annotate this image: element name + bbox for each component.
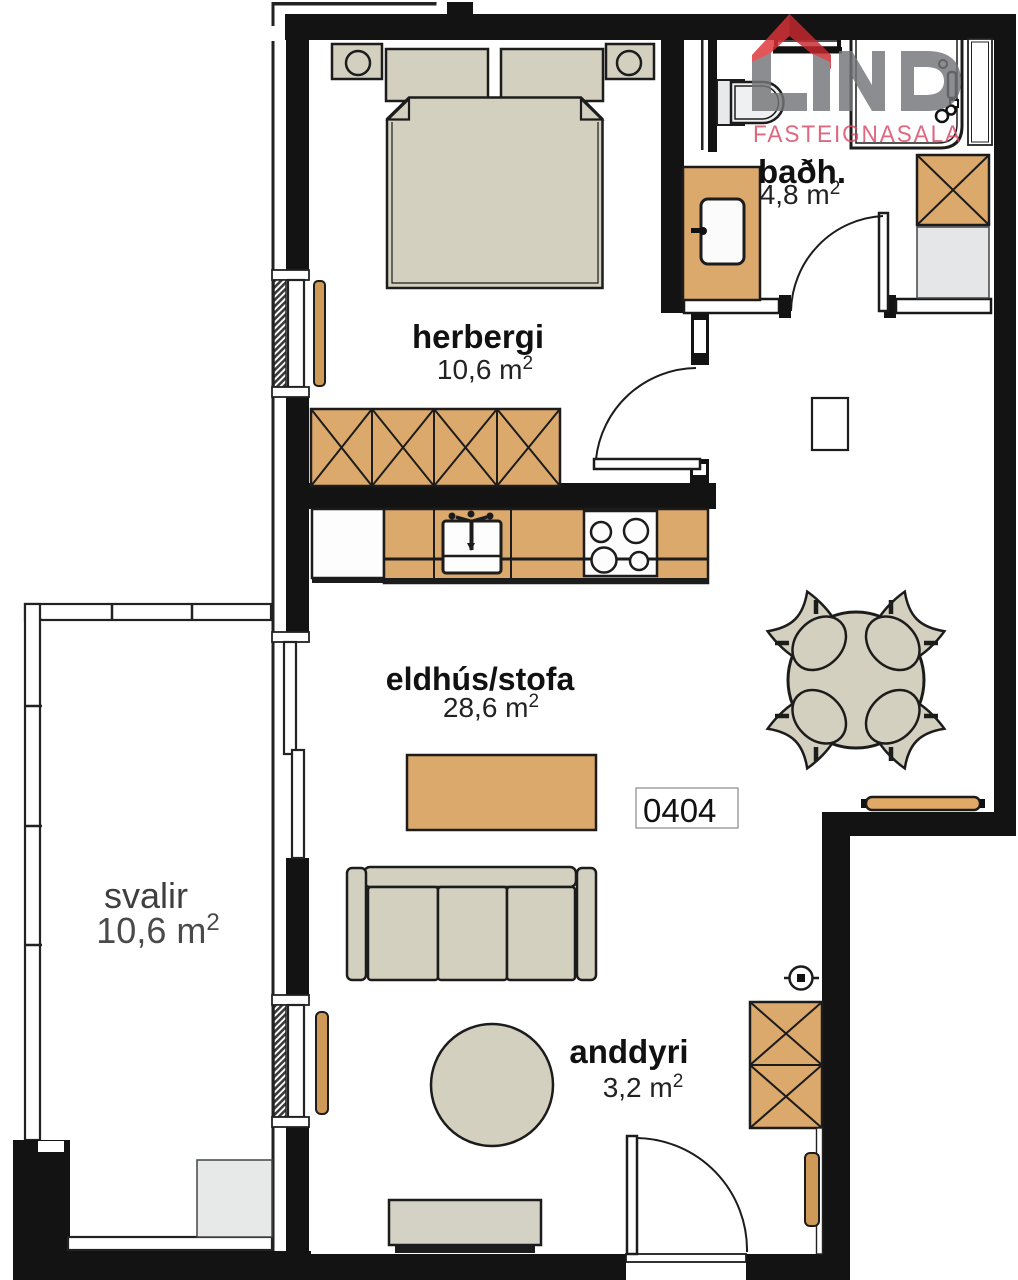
svg-text:3,2 m2: 3,2 m2 (603, 1071, 684, 1103)
svg-text:anddyri: anddyri (569, 1033, 688, 1070)
svg-text:FASTEIGNASALA: FASTEIGNASALA (753, 121, 962, 148)
svg-text:0404: 0404 (643, 792, 716, 829)
svg-text:10,6 m2: 10,6 m2 (437, 353, 533, 385)
svg-text:10,6 m2: 10,6 m2 (96, 909, 219, 951)
svg-text:herbergi: herbergi (412, 318, 544, 355)
svg-text:28,6 m2: 28,6 m2 (443, 691, 539, 723)
svg-text:4,8 m2: 4,8 m2 (760, 178, 841, 210)
